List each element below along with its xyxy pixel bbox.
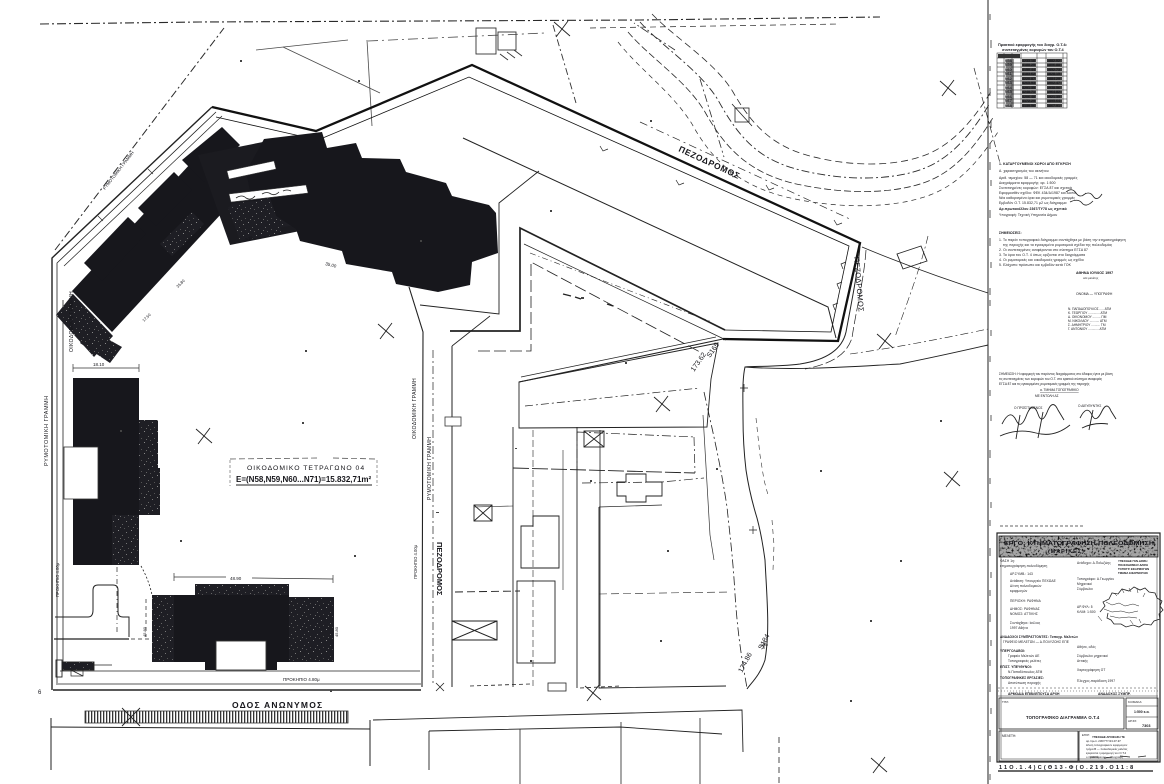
svg-text:48.90: 48.90 <box>230 576 242 581</box>
svg-text:ΚΛΙΜ: 1:500: ΚΛΙΜ: 1:500 <box>1077 610 1096 614</box>
svg-text:Συντάχθηκε: Ιούλιος: Συντάχθηκε: Ιούλιος <box>1010 621 1041 625</box>
svg-text:N65: N65 <box>1005 90 1012 94</box>
svg-text:Εμβαδόν Ο.Τ. 15.832,71 μ2 ως δ: Εμβαδόν Ο.Τ. 15.832,71 μ2 ως διάγραμμα <box>999 201 1067 205</box>
svg-text:κτηματογράφηση-πολεοδόμηση: κτηματογράφηση-πολεοδόμηση <box>1000 564 1047 568</box>
svg-text:Ο ΔΙΕΥΘΥΝΤΗΣ: Ο ΔΙΕΥΘΥΝΤΗΣ <box>1078 404 1101 408</box>
svg-text:4139.56: 4139.56 <box>1022 104 1035 108</box>
svg-text:4265.93: 4265.93 <box>1022 81 1035 85</box>
svg-text:ΑΡ.ΣΧ:: ΑΡ.ΣΧ: <box>1128 719 1137 723</box>
svg-text:ΑΡΜΟΔΙΑ ΕΠΙΒΛΕΠΟΥΣΑ ΑΡΧΗ: ΑΡΜΟΔΙΑ ΕΠΙΒΛΕΠΟΥΣΑ ΑΡΧΗ <box>1008 692 1060 696</box>
svg-text:Ανάδοχοι: Δ.Πολυζώης: Ανάδοχοι: Δ.Πολυζώης <box>1077 561 1111 565</box>
svg-text:τις συντεταγμένες των κορυφών: τις συντεταγμένες των κορυφών του Ο.Τ. σ… <box>999 377 1102 381</box>
svg-text:Ο ΠΡΟΪΣΤΑΜΕΝΟΣ: Ο ΠΡΟΪΣΤΑΜΕΝΟΣ <box>1014 406 1043 410</box>
svg-text:1:500 κ.α.: 1:500 κ.α. <box>1134 710 1150 714</box>
svg-text:ΣΗΜΕΙΩΣΗ: Η εφαρμογή του παρόν: ΣΗΜΕΙΩΣΗ: Η εφαρμογή του παρόντος διαγρά… <box>999 372 1113 376</box>
svg-text:ΝΟΜΟΣ: ΑΤΤΙΚΗΣ: ΝΟΜΟΣ: ΑΤΤΙΚΗΣ <box>1010 612 1038 616</box>
svg-text:ΟΙΚΟΔΟΜΙΚΟ ΤΕΤΡΑΓΩΝΟ 04: ΟΙΚΟΔΟΜΙΚΟ ΤΕΤΡΑΓΩΝΟ 04 <box>247 465 365 472</box>
svg-text:ΟΙΚΟΔΟΜΙΚΗ ΓΡΑΜΜΗ: ΟΙΚΟΔΟΜΙΚΗ ΓΡΑΜΜΗ <box>412 378 418 439</box>
svg-text:Ε=(Ν58,Ν59,Ν60...Ν71)=15.832,7: Ε=(Ν58,Ν59,Ν60...Ν71)=15.832,71m² <box>236 475 372 484</box>
svg-text:Αριθ. τεμαχίου: 58 — 71 και οι: Αριθ. τεμαχίου: 58 — 71 και οικοδομικές … <box>999 176 1078 180</box>
svg-text:Γραφείο Μελετών ΑΕ: Γραφείο Μελετών ΑΕ <box>1008 654 1039 658</box>
svg-text:ΟΔΟΣ ΑΝΩΝΥΜΟΣ: ΟΔΟΣ ΑΝΩΝΥΜΟΣ <box>232 700 323 710</box>
svg-text:Αρ.πρωτοκόλλου 2367/ΤΥ78 ως σχ: Αρ.πρωτοκόλλου 2367/ΤΥ78 ως σχετικό <box>999 207 1067 211</box>
svg-text:1895.64: 1895.64 <box>1047 99 1060 103</box>
svg-text:ΑΘΗΝΑ ΙΟΥΛΙΟΣ 1997: ΑΘΗΝΑ ΙΟΥΛΙΟΣ 1997 <box>1076 271 1113 275</box>
svg-text:ΦΑΣΗ 1η:: ΦΑΣΗ 1η: <box>1000 559 1015 563</box>
svg-text:1997 Αθήνα: 1997 Αθήνα <box>1010 626 1028 630</box>
svg-text:1964.82: 1964.82 <box>1047 90 1060 94</box>
svg-text:ΜΕ ΕΝΤΟΛΗ ΔΣ: ΜΕ ΕΝΤΟΛΗ ΔΣ <box>1035 394 1059 398</box>
svg-text:1806.88: 1806.88 <box>1047 63 1060 67</box>
svg-text:ΤΟΠΟΓΡΑΦΙΚΟ ΔΙΑΓΡΑΜΜΑ Ο.Τ.4: ΤΟΠΟΓΡΑΦΙΚΟ ΔΙΑΓΡΑΜΜΑ Ο.Τ.4 <box>1026 715 1100 720</box>
svg-text:Τοπογραφικές μελέτες: Τοπογραφικές μελέτες <box>1008 659 1042 663</box>
svg-text:ΚΛΙΜΑΚΑ:: ΚΛΙΜΑΚΑ: <box>1128 700 1142 704</box>
svg-text:Μηχανικοί: Μηχανικοί <box>1077 582 1092 586</box>
svg-text:(ΜΑΡΙΚΕΣ): (ΜΑΡΙΚΕΣ) <box>1048 549 1085 555</box>
svg-text:Τοπογράφοι: Α.Γεωργίου: Τοπογράφοι: Α.Γεωργίου <box>1077 577 1114 581</box>
svg-text:εφαρμογών: εφαρμογών <box>1010 589 1028 593</box>
svg-text:Δ/νση πολεοδομικών: Δ/νση πολεοδομικών <box>1010 584 1042 588</box>
svg-text:1. ΚΑΤΑΡΓΟΥΜΕΝΟΙ ΧΩΡΟΙ ΑΠΟ ΕΓΚ: 1. ΚΑΤΑΡΓΟΥΜΕΝΟΙ ΧΩΡΟΙ ΑΠΟ ΕΓΚΡΙΣΗ <box>999 162 1071 166</box>
svg-text:1902.47: 1902.47 <box>1047 81 1060 85</box>
svg-text:7303: 7303 <box>1142 724 1150 728</box>
svg-text:Πρακτικό εφαρμογής του διαγρ.: Πρακτικό εφαρμογής του διαγρ. Ο.Τ.4ι <box>998 43 1067 47</box>
svg-text:Εφαρμοσθέν σχέδιο: ΦΕΚ 434/Δ/1: Εφαρμοσθέν σχέδιο: ΦΕΚ 434/Δ/1987 και λο… <box>999 191 1076 195</box>
svg-text:ΠΡΟΚΗΠΙΟ 4.80μ: ΠΡΟΚΗΠΙΟ 4.80μ <box>283 677 320 682</box>
svg-text:ΤΙΤΛ:: ΤΙΤΛ: <box>1002 700 1009 704</box>
svg-text:ΠΕΡΙΟΧΗ: ΡΑΦΗΝΑ: ΠΕΡΙΟΧΗ: ΡΑΦΗΝΑ <box>1010 599 1042 603</box>
svg-text:N59: N59 <box>1005 63 1012 67</box>
svg-text:Αττικής: Αττικής <box>1077 659 1088 663</box>
svg-text:5. Ελάχιστο πρόσωπο και εμβαδό: 5. Ελάχιστο πρόσωπο και εμβαδόν κατά ΓΟΚ <box>999 263 1072 267</box>
svg-text:ΑΝΑΔΟΧΟΙ ΣΥΜΠΡΑΤΤΟΝΤΕΣ: Τοπογρ: ΑΝΑΔΟΧΟΙ ΣΥΜΠΡΑΤΤΟΝΤΕΣ: Τοπογρ. Μελετών <box>1000 635 1078 639</box>
svg-text:N67: N67 <box>1005 99 1012 103</box>
svg-text:Σύμβουλοι μηχανικοί: Σύμβουλοι μηχανικοί <box>1077 654 1108 658</box>
svg-text:ΕΓΣΑ 87 και τις εγκεκριμένες ρ: ΕΓΣΑ 87 και τις εγκεκριμένες ρυμοτομικές… <box>999 382 1090 386</box>
svg-text:N61: N61 <box>1005 72 1012 76</box>
svg-text:Διαγράμματα εφαρμογής: αρ. 1:5: Διαγράμματα εφαρμογής: αρ. 1:500 <box>999 181 1056 185</box>
svg-text:ΑΝΑΔΟΧΟΣ ΣΥΜΠΡ.: ΑΝΑΔΟΧΟΣ ΣΥΜΠΡ. <box>1098 692 1131 696</box>
svg-text:Ανάθεση: Υπουργείο ΠΕΧΩΔΕ: Ανάθεση: Υπουργείο ΠΕΧΩΔΕ <box>1010 579 1056 583</box>
svg-text:ΑΡ.ΦΥΛ: 5: ΑΡ.ΦΥΛ: 5 <box>1077 605 1093 609</box>
svg-text:ΡΥΜΟΤΟΜΙΚΗ ΓΡΑΜΜΗ: ΡΥΜΟΤΟΜΙΚΗ ΓΡΑΜΜΗ <box>44 395 50 466</box>
svg-text:ΟΝΟΜΑ — ΥΠΟΓΡΑΦΗ: ΟΝΟΜΑ — ΥΠΟΓΡΑΦΗ <box>1076 292 1113 296</box>
svg-text:της περιοχής και τα εγκεκριμέν: της περιοχής και τα εγκεκριμένα ρυμοτομι… <box>1003 243 1113 247</box>
svg-text:ΑΡ.ΣΥΜΒ.: 143: ΑΡ.ΣΥΜΒ.: 143 <box>1010 572 1033 576</box>
svg-text:ΕΓΚΡ:: ΕΓΚΡ: <box>1082 733 1090 737</box>
svg-text:ΓΡΑΦΕΙΟ ΜΕΛΕΤΩΝ — Δ.ΠΟΛΥΖΩΗΣ Ε: ΓΡΑΦΕΙΟ ΜΕΛΕΤΩΝ — Δ.ΠΟΛΥΖΩΗΣ ΕΠΕ <box>1003 640 1069 644</box>
svg-text:ΣΗΜΕΙΩΣΕΙΣ:: ΣΗΜΕΙΩΣΕΙΣ: <box>999 231 1022 235</box>
svg-text:4172.29: 4172.29 <box>1022 99 1035 103</box>
svg-text:ΠΡΟΚΗΠΙΟ 4.00μ: ΠΡΟΚΗΠΙΟ 4.00μ <box>413 544 418 579</box>
svg-text:Έλεγχος-παράδοση 1997: Έλεγχος-παράδοση 1997 <box>1076 679 1115 683</box>
svg-text:ΥΠΕΡΓΟΛΑΒΟΙ:: ΥΠΕΡΓΟΛΑΒΟΙ: <box>1000 649 1025 653</box>
svg-text:3. Τα όρια του Ο.Τ. 4 όπως ορί: 3. Τα όρια του Ο.Τ. 4 όπως ορίζονται στα… <box>999 253 1085 257</box>
svg-text:ΠΡΟΚΗΠΙΟ 4.00μ: ΠΡΟΚΗΠΙΟ 4.00μ <box>55 562 60 597</box>
svg-text:ΕΠΙΣΤ. ΥΠΕΥΘΥΝΟΙ:: ΕΠΙΣΤ. ΥΠΕΥΘΥΝΟΙ: <box>1000 665 1032 669</box>
svg-text:ΔΗΜΟΣ: ΡΑΦΗΝΑΣ: ΔΗΜΟΣ: ΡΑΦΗΝΑΣ <box>1010 607 1040 611</box>
svg-text:4. Οι ρυμοτομικές και οικοδομι: 4. Οι ρυμοτομικές και οικοδομικές γραμμέ… <box>999 258 1084 262</box>
svg-text:4188.25: 4188.25 <box>1022 63 1035 67</box>
svg-text:2. Οι συντεταγμένες αναφέροντα: 2. Οι συντεταγμένες αναφέρονται στο σύστ… <box>999 248 1088 252</box>
svg-text:συντεταγμένες κορυφών του Ο.Τ.: συντεταγμένες κορυφών του Ο.Τ.4 <box>1002 48 1065 52</box>
svg-text:45.80: 45.80 <box>334 626 339 637</box>
svg-text:11Ο.1.4)C(Θ13-Φ(Ο.219.Ο11:8: 11Ο.1.4)C(Θ13-Φ(Ο.219.Ο11:8 <box>999 765 1135 771</box>
svg-text:Γ. ΑΝΤΩΝΙΟΥ ............ ΑΤΜ: Γ. ΑΝΤΩΝΙΟΥ ............ ΑΤΜ <box>1068 327 1106 331</box>
svg-text:Αθήνα, οδός: Αθήνα, οδός <box>1077 645 1096 649</box>
svg-text:Αποτύπωση περιοχής: Αποτύπωση περιοχής <box>1008 681 1041 685</box>
svg-text:Σύμβουλοι: Σύμβουλοι <box>1077 587 1093 591</box>
svg-text:ΠΕΖΟΔΡΟΜΟΣ: ΠΕΖΟΔΡΟΜΟΣ <box>435 542 444 596</box>
svg-text:18.10: 18.10 <box>93 362 105 367</box>
svg-text:Συντεταγμένες κορυφών: ΕΓΣΑ 87: Συντεταγμένες κορυφών: ΕΓΣΑ 87 και σχετι… <box>999 186 1072 190</box>
svg-text:ΤΟΠΟΓΡΑΦΙΚΕΣ ΕΡΓΑΣΙΕΣ:: ΤΟΠΟΓΡΑΦΙΚΕΣ ΕΡΓΑΣΙΕΣ: <box>1000 676 1044 680</box>
svg-text:1867.91: 1867.91 <box>1047 104 1060 108</box>
svg-text:ΟΙΚΟΔΟΜΙΚΗ ΓΡΑΜΜΗ: ΟΙΚΟΔΟΜΙΚΗ ΓΡΑΜΜΗ <box>69 291 75 352</box>
svg-text:Α. χαρακτηρισμός του ακινήτου: Α. χαρακτηρισμός του ακινήτου <box>999 169 1049 173</box>
svg-text:1828.15: 1828.15 <box>1047 72 1060 76</box>
svg-text:N68: N68 <box>1005 104 1012 108</box>
svg-text:α/α μελέτης: α/α μελέτης <box>1083 276 1099 280</box>
svg-text:Νέα καθορισμένα όρια και ρυμοτ: Νέα καθορισμένα όρια και ρυμοτομικές γρα… <box>999 196 1075 200</box>
svg-text:ΜΕΛΕΤΗ:: ΜΕΛΕΤΗ: <box>1002 734 1016 738</box>
svg-text:4183.62: 4183.62 <box>1022 72 1035 76</box>
svg-text:N63: N63 <box>1005 81 1012 85</box>
svg-text:α. ΤΜΗΜΑ ΤΟΠΟΓΡΑΦΙΚΟ: α. ΤΜΗΜΑ ΤΟΠΟΓΡΑΦΙΚΟ <box>1040 388 1079 392</box>
svg-text:ΤΜΗΜΑ ΕΦΑΡΜΟΓΩΝ: ΤΜΗΜΑ ΕΦΑΡΜΟΓΩΝ <box>1118 571 1148 575</box>
svg-text:4248.71: 4248.71 <box>1022 90 1035 94</box>
svg-text:Ν.Παπαδόπουλος ΑΤΜ: Ν.Παπαδόπουλος ΑΤΜ <box>1008 670 1043 674</box>
svg-text:1. Το παρόν τοπογραφικό διάγρα: 1. Το παρόν τοπογραφικό διάγραμμα συντάχ… <box>999 238 1126 242</box>
svg-text:Χαρτογράφηση ΟΤ: Χαρτογράφηση ΟΤ <box>1077 668 1105 672</box>
svg-text:Υπογραφή: Τεχνική Υπηρεσία Δήμ: Υπογραφή: Τεχνική Υπηρεσία Δήμου <box>999 213 1057 217</box>
svg-text:ΕΡΓΟ: ΚΤΗΜΑΤΟΓΡΑΦΗΣΗ-ΠΟΛΕΟΔΟΜΗ: ΕΡΓΟ: ΚΤΗΜΑΤΟΓΡΑΦΗΣΗ-ΠΟΛΕΟΔΟΜΗΣΗ <box>1004 541 1154 547</box>
svg-text:ΡΥΜΟΤΟΜΙΚΗ ΓΡΑΜΜΗ: ΡΥΜΟΤΟΜΙΚΗ ΓΡΑΜΜΗ <box>427 437 433 500</box>
